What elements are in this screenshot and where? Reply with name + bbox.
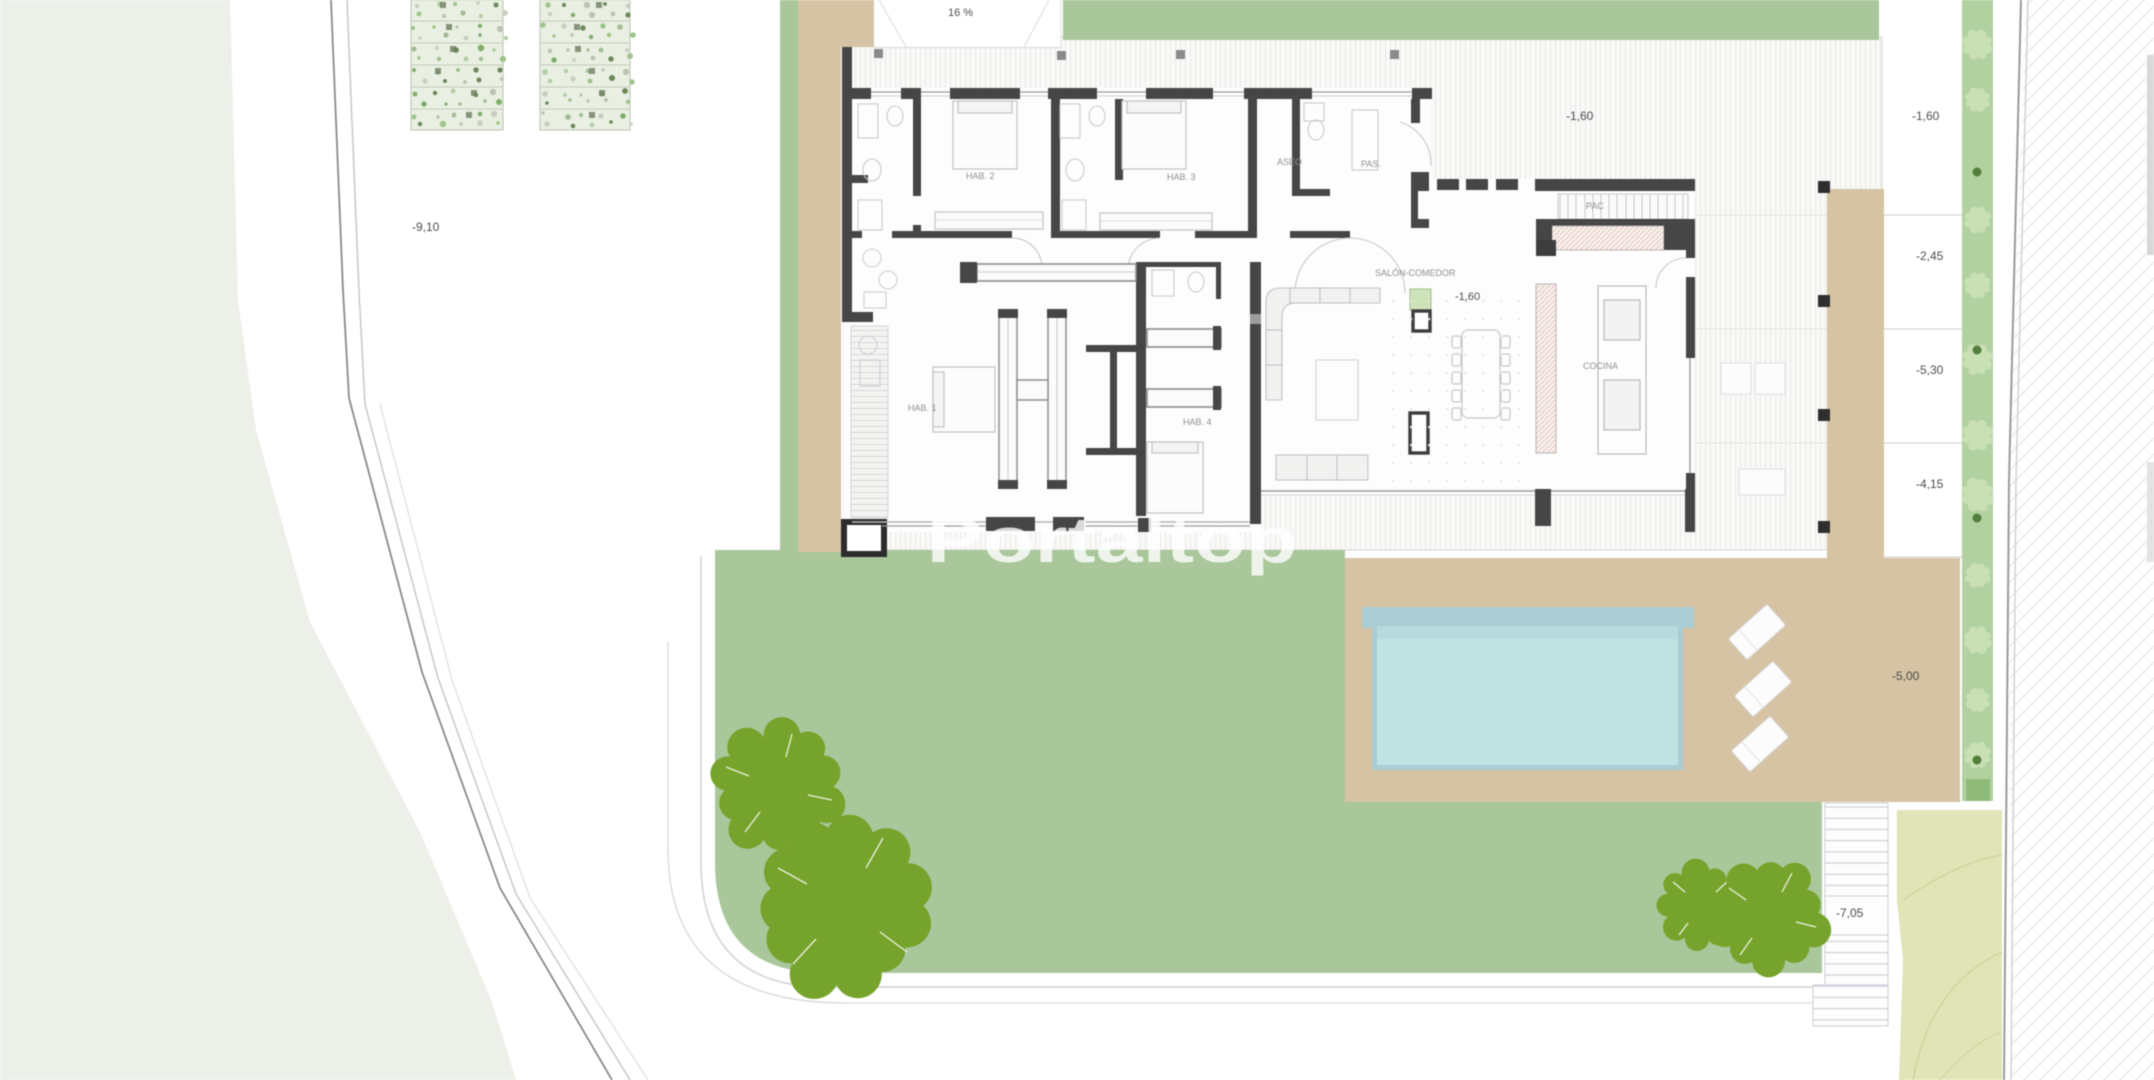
svg-text:COCINA: COCINA [1583, 361, 1618, 371]
svg-text:SALÓN-COMEDOR: SALÓN-COMEDOR [1375, 268, 1456, 278]
svg-text:-2,45: -2,45 [1916, 249, 1944, 263]
svg-text:HAB. 3: HAB. 3 [1167, 172, 1196, 182]
svg-text:HAB. 1: HAB. 1 [908, 403, 937, 413]
svg-text:-5,00: -5,00 [1892, 669, 1920, 683]
svg-text:Portaltop: Portaltop [927, 504, 1298, 576]
svg-text:-5,30: -5,30 [1916, 363, 1944, 377]
svg-text:-4,15: -4,15 [1916, 477, 1944, 491]
svg-text:16 %: 16 % [948, 7, 973, 19]
svg-text:ASEO: ASEO [1277, 157, 1302, 167]
svg-text:-1,60: -1,60 [1912, 109, 1940, 123]
svg-text:HAB. 2: HAB. 2 [966, 171, 995, 181]
svg-text:PAC: PAC [1586, 201, 1604, 211]
svg-text:-1,60: -1,60 [1455, 291, 1480, 303]
svg-text:-9,10: -9,10 [412, 220, 440, 234]
svg-text:-7,05: -7,05 [1836, 906, 1864, 920]
svg-text:-1,60: -1,60 [1566, 109, 1594, 123]
svg-text:HAB. 4: HAB. 4 [1183, 417, 1212, 427]
svg-text:PAS.: PAS. [1361, 159, 1381, 169]
